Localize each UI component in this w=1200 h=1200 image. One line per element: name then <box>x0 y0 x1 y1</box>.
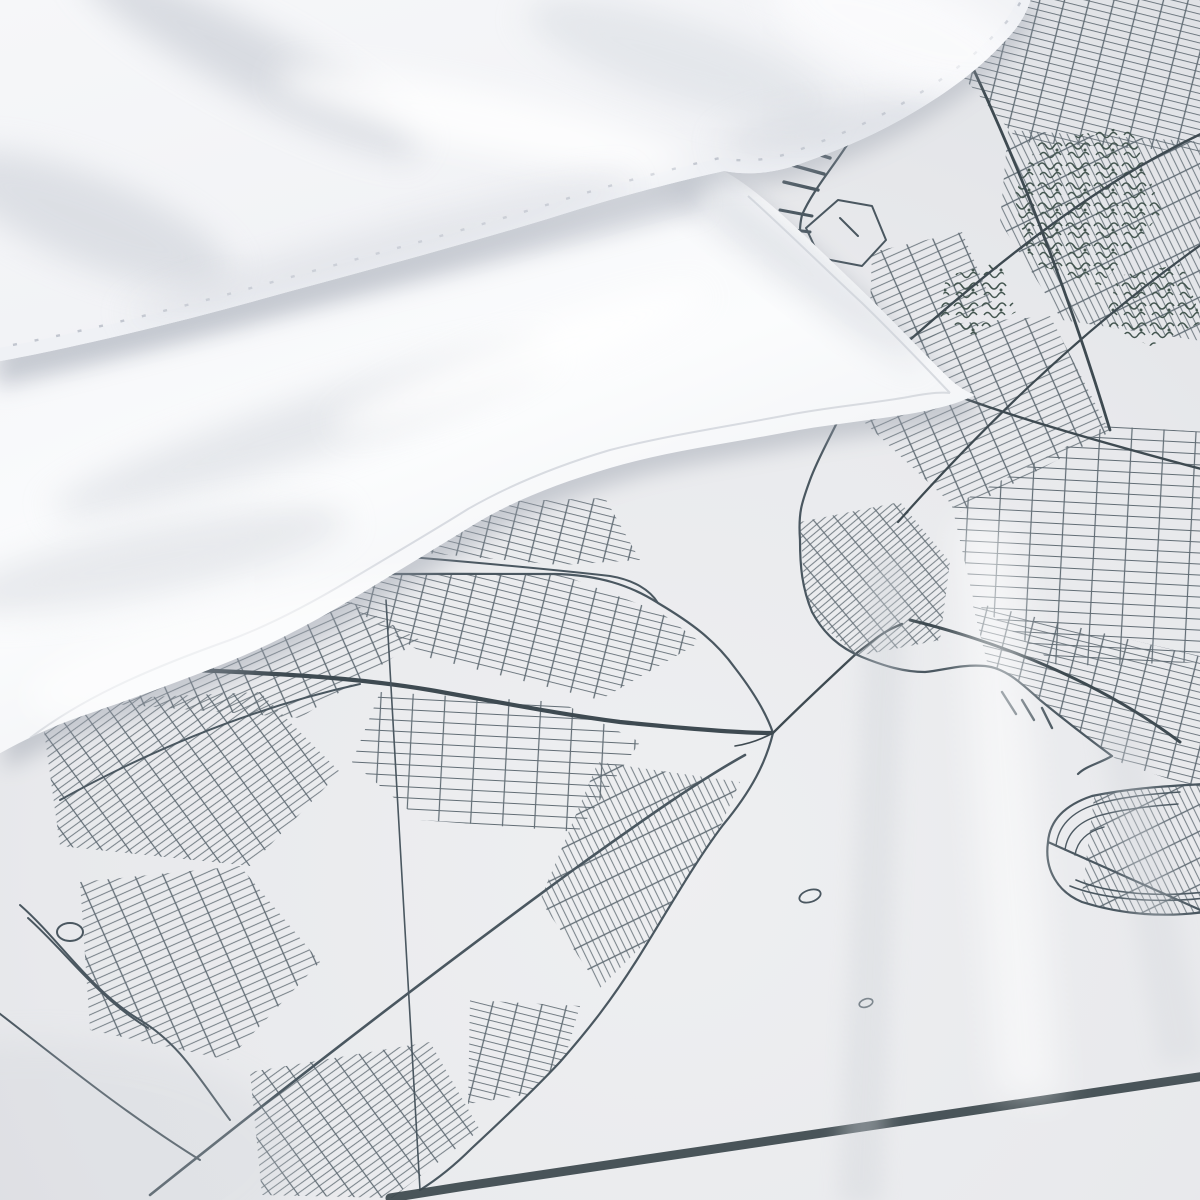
bedding-photo-canvas <box>0 0 1200 1200</box>
bedding-photo <box>0 0 1200 1200</box>
